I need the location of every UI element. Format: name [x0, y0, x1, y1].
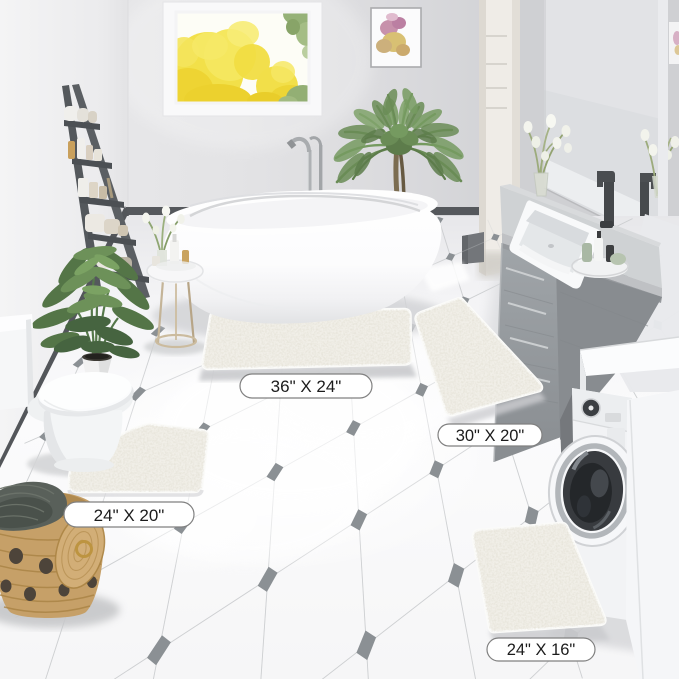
svg-text:30" X 20": 30" X 20": [456, 427, 525, 445]
svg-text:36" X 24": 36" X 24": [271, 377, 342, 396]
svg-text:24" X 16": 24" X 16": [507, 641, 576, 659]
svg-text:24" X 20": 24" X 20": [94, 506, 165, 525]
